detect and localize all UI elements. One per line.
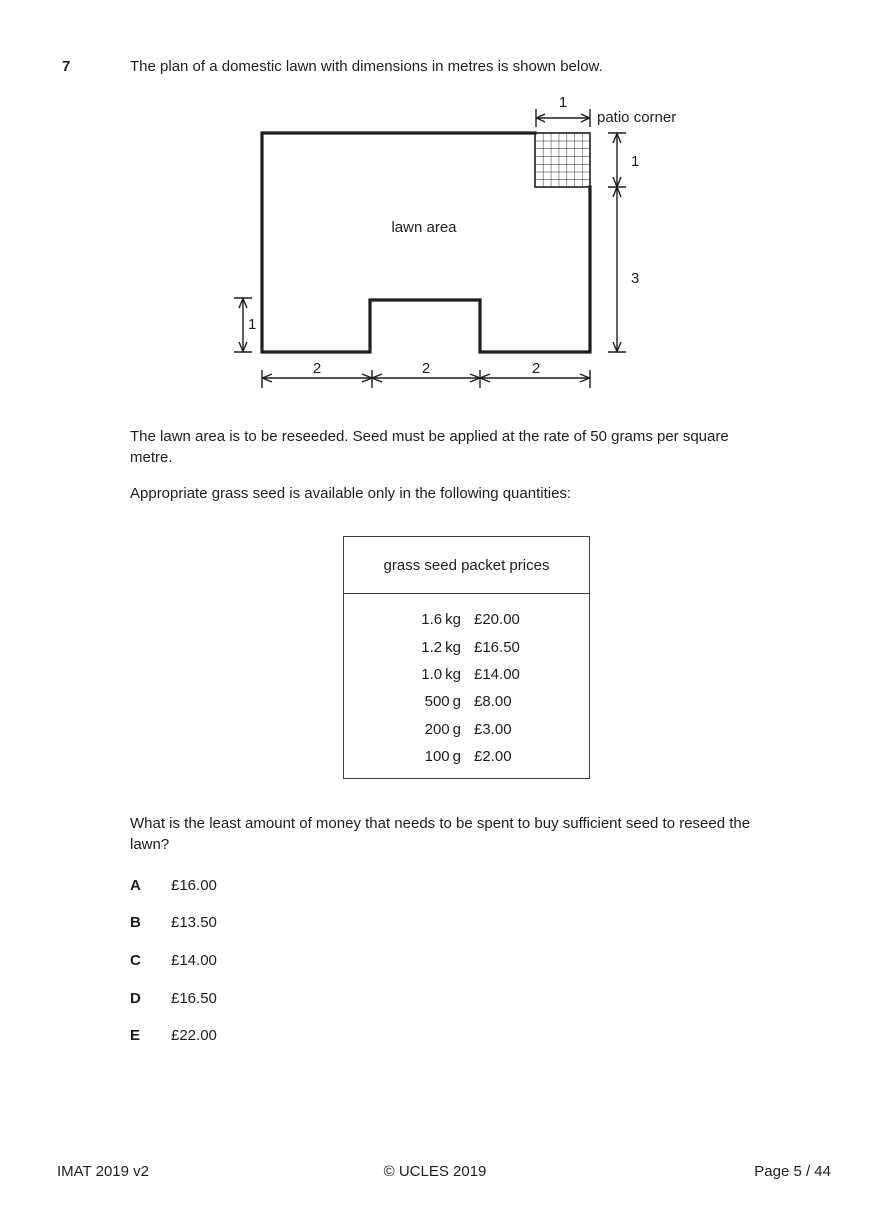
table-row: 200 g £3.00 (344, 716, 589, 743)
option-value: £16.00 (171, 877, 217, 894)
reseed-line-2: metre. (130, 447, 729, 468)
option-b: B £13.50 (130, 914, 217, 931)
price-cell: £2.00 (474, 748, 512, 765)
quantity-cell: 200 g (344, 721, 461, 738)
dim-label-bottom-2: 2 (422, 360, 430, 377)
reseed-line-1: The lawn area is to be reseeded. Seed mu… (130, 426, 729, 447)
option-value: £14.00 (171, 952, 217, 969)
footer-page-number: Page 5 / 44 (754, 1163, 831, 1180)
question-paragraph: What is the least amount of money that n… (130, 813, 750, 855)
question-line-2: lawn? (130, 834, 750, 855)
lawn-area-label: lawn area (391, 219, 457, 236)
price-cell: £8.00 (474, 693, 512, 710)
dim-label-top: 1 (559, 94, 567, 111)
option-value: £16.50 (171, 990, 217, 1007)
table-row: 1.0 kg £14.00 (344, 661, 589, 688)
price-cell: £14.00 (474, 666, 520, 683)
table-row: 500 g £8.00 (344, 688, 589, 715)
table-row: 1.2 kg £16.50 (344, 633, 589, 660)
question-line-1: What is the least amount of money that n… (130, 813, 750, 834)
quantity-cell: 100 g (344, 748, 461, 765)
option-value: £13.50 (171, 914, 217, 931)
patio-corner-hatch (535, 133, 590, 187)
reseed-paragraph: The lawn area is to be reseeded. Seed mu… (130, 426, 729, 468)
price-table-body: 1.6 kg £20.00 1.2 kg £16.50 1.0 kg £14.0… (344, 594, 589, 770)
option-letter: A (130, 877, 171, 894)
lawn-plan-diagram: lawn area patio corner 1 1 3 1 2 2 2 (0, 0, 870, 410)
available-paragraph: Appropriate grass seed is available only… (130, 483, 571, 504)
option-letter: B (130, 914, 171, 931)
dim-label-right-upper: 1 (631, 153, 639, 170)
option-e: E £22.00 (130, 1027, 217, 1044)
quantity-cell: 500 g (344, 693, 461, 710)
option-letter: E (130, 1027, 171, 1044)
dim-label-left: 1 (248, 316, 256, 333)
option-a: A £16.00 (130, 877, 217, 894)
option-value: £22.00 (171, 1027, 217, 1044)
dim-label-bottom-3: 2 (532, 360, 540, 377)
price-table-title: grass seed packet prices (344, 537, 589, 594)
dim-label-bottom-1: 2 (313, 360, 321, 377)
price-cell: £20.00 (474, 611, 520, 628)
option-c: C £14.00 (130, 952, 217, 969)
option-letter: D (130, 990, 171, 1007)
exam-page: 7 The plan of a domestic lawn with dimen… (0, 0, 870, 1230)
quantity-cell: 1.2 kg (344, 639, 461, 656)
patio-corner-label: patio corner (597, 109, 676, 126)
table-row: 100 g £2.00 (344, 743, 589, 770)
price-cell: £16.50 (474, 639, 520, 656)
quantity-cell: 1.0 kg (344, 666, 461, 683)
quantity-cell: 1.6 kg (344, 611, 461, 628)
dim-label-right-lower: 3 (631, 270, 639, 287)
option-d: D £16.50 (130, 990, 217, 1007)
option-letter: C (130, 952, 171, 969)
price-cell: £3.00 (474, 721, 512, 738)
footer-left: IMAT 2019 v2 (57, 1163, 149, 1180)
table-row: 1.6 kg £20.00 (344, 606, 589, 633)
price-table: grass seed packet prices 1.6 kg £20.00 1… (343, 536, 590, 779)
